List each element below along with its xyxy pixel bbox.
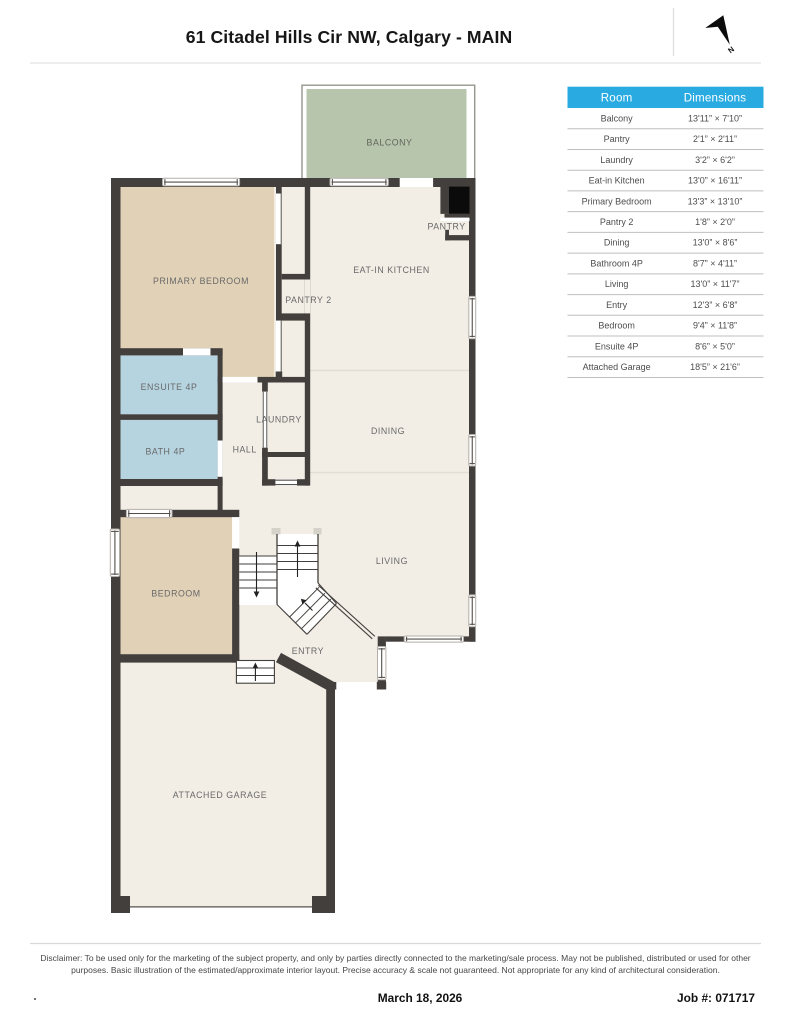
svg-text:2'1” × 2'11”: 2'1” × 2'11” — [693, 134, 737, 144]
svg-text:PRIMARY BEDROOM: PRIMARY BEDROOM — [153, 276, 249, 286]
svg-text:13'0” × 16'11”: 13'0” × 16'11” — [688, 176, 742, 186]
svg-text:EAT-IN KITCHEN: EAT-IN KITCHEN — [353, 265, 429, 275]
svg-text:61 Citadel Hills Cir NW, Calga: 61 Citadel Hills Cir NW, Calgary - MAIN — [186, 27, 513, 47]
svg-text:PANTRY 2: PANTRY 2 — [285, 295, 331, 305]
svg-text:BALCONY: BALCONY — [367, 138, 413, 148]
svg-text:8'6” × 5'0”: 8'6” × 5'0” — [695, 341, 735, 351]
svg-text:Bedroom: Bedroom — [598, 321, 635, 331]
svg-text:1'8” × 2'0”: 1'8” × 2'0” — [695, 217, 735, 227]
svg-text:Job #: 071717: Job #: 071717 — [677, 991, 755, 1005]
svg-text:13'0” × 8'6”: 13'0” × 8'6” — [693, 238, 738, 248]
svg-text:LAUNDRY: LAUNDRY — [256, 415, 302, 425]
svg-text:13'11” × 7'10”: 13'11” × 7'10” — [688, 113, 742, 123]
svg-text:Bathroom 4P: Bathroom 4P — [590, 258, 643, 268]
svg-text:Balcony: Balcony — [601, 113, 634, 123]
svg-text:Ensuite 4P: Ensuite 4P — [595, 341, 639, 351]
svg-text:Disclaimer: To be used only fo: Disclaimer: To be used only for the mark… — [40, 953, 750, 963]
svg-text:Pantry: Pantry — [604, 134, 631, 144]
svg-text:purposes. Basic illustration o: purposes. Basic illustration of the esti… — [71, 965, 720, 975]
svg-text:DINING: DINING — [371, 426, 405, 436]
svg-text:3'2” × 6'2”: 3'2” × 6'2” — [695, 155, 735, 165]
svg-text:HALL: HALL — [233, 444, 257, 454]
svg-text:Laundry: Laundry — [600, 155, 633, 165]
svg-text:Primary Bedroom: Primary Bedroom — [582, 196, 652, 206]
svg-text:Room: Room — [601, 92, 633, 105]
svg-text:Eat-in Kitchen: Eat-in Kitchen — [589, 176, 645, 186]
svg-text:March 18, 2026: March 18, 2026 — [378, 991, 463, 1005]
svg-text:12'3” × 6'8”: 12'3” × 6'8” — [693, 300, 738, 310]
svg-text:Entry: Entry — [606, 300, 628, 310]
svg-text:BATH 4P: BATH 4P — [145, 447, 185, 457]
svg-text:8'7” × 4'11”: 8'7” × 4'11” — [693, 258, 737, 268]
svg-text:Pantry 2: Pantry 2 — [600, 217, 634, 227]
svg-text:BEDROOM: BEDROOM — [151, 589, 200, 599]
svg-text:Living: Living — [605, 279, 629, 289]
svg-text:Dimensions: Dimensions — [684, 92, 747, 105]
svg-text:18'5” × 21'6”: 18'5” × 21'6” — [690, 362, 740, 372]
svg-text:13'3” × 13'10”: 13'3” × 13'10” — [688, 196, 743, 206]
svg-text:ENSUITE 4P: ENSUITE 4P — [141, 382, 198, 392]
svg-text:13'0” × 11'7”: 13'0” × 11'7” — [690, 279, 739, 289]
svg-text:PANTRY: PANTRY — [428, 222, 466, 232]
svg-text:Dining: Dining — [604, 238, 630, 248]
svg-text:ENTRY: ENTRY — [292, 646, 324, 656]
svg-text:LIVING: LIVING — [376, 556, 408, 566]
svg-text:Attached Garage: Attached Garage — [583, 362, 651, 372]
svg-text:9'4” × 11'8”: 9'4” × 11'8” — [693, 321, 737, 331]
svg-text:ATTACHED GARAGE: ATTACHED GARAGE — [173, 790, 267, 800]
